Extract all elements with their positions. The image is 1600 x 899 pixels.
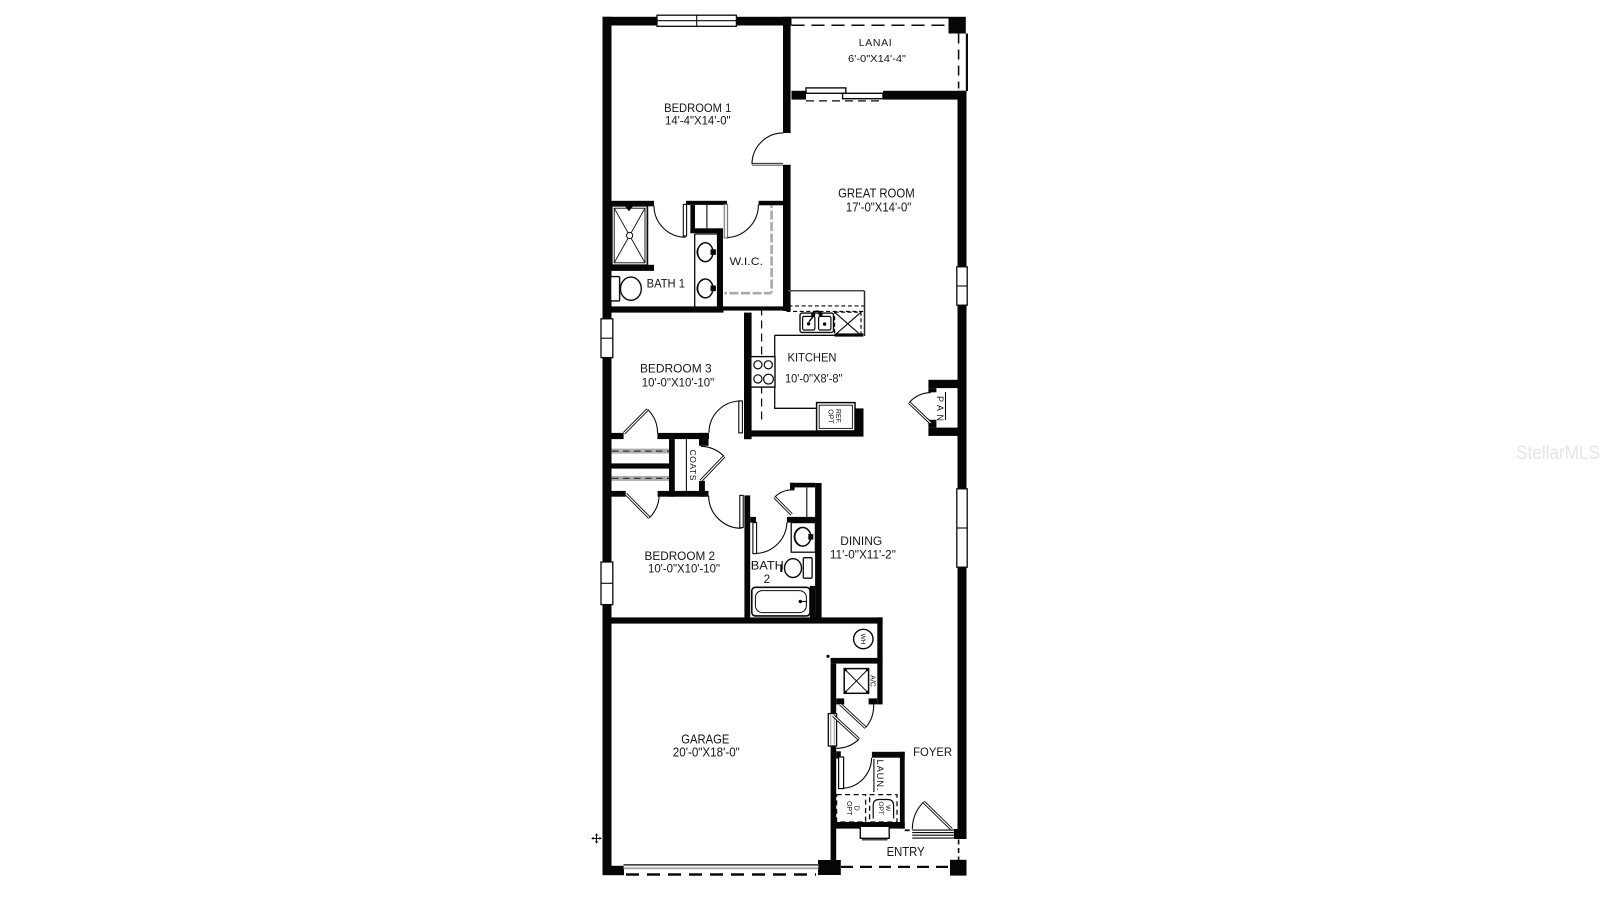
svg-text:A/C: A/C <box>868 675 875 687</box>
svg-text:REF.: REF. <box>834 409 841 424</box>
svg-text:2: 2 <box>764 573 771 586</box>
svg-text:LAUN.: LAUN. <box>875 760 886 791</box>
svg-text:DINING: DINING <box>840 534 882 548</box>
svg-text:StellarMLS: StellarMLS <box>1516 443 1600 464</box>
svg-text:FOYER: FOYER <box>913 745 952 759</box>
svg-text:LANAI: LANAI <box>859 37 892 49</box>
svg-text:BATH 1: BATH 1 <box>647 277 685 291</box>
svg-text:BEDROOM 3: BEDROOM 3 <box>640 362 712 376</box>
svg-text:D: D <box>853 806 860 811</box>
svg-text:11'-0"X11'-2": 11'-0"X11'-2" <box>830 548 896 562</box>
svg-text:OPT: OPT <box>877 802 884 815</box>
svg-text:GREAT ROOM: GREAT ROOM <box>838 186 915 201</box>
svg-text:W.I.C.: W.I.C. <box>730 256 763 268</box>
svg-text:10'-0"X8'-8": 10'-0"X8'-8" <box>785 373 843 386</box>
svg-text:OPT: OPT <box>845 801 852 816</box>
svg-text:COATS: COATS <box>688 450 698 481</box>
svg-text:17'-0"X14'-0": 17'-0"X14'-0" <box>846 200 911 214</box>
svg-text:OPT: OPT <box>827 409 834 424</box>
svg-text:10'-0"X10'-10": 10'-0"X10'-10" <box>648 561 720 575</box>
svg-text:14'-4"X14'-0": 14'-4"X14'-0" <box>665 113 731 127</box>
svg-text:BATH: BATH <box>751 560 784 573</box>
svg-text:PAN: PAN <box>935 396 945 421</box>
svg-text:KITCHEN: KITCHEN <box>788 352 837 365</box>
svg-text:20'-0"X18'-0": 20'-0"X18'-0" <box>673 745 740 760</box>
svg-text:ENTRY: ENTRY <box>887 844 925 859</box>
svg-text:W: W <box>884 805 891 812</box>
svg-text:WH: WH <box>859 634 866 645</box>
svg-text:6'-0"X14'-4": 6'-0"X14'-4" <box>848 54 906 65</box>
svg-text:10'-0"X10'-10": 10'-0"X10'-10" <box>642 376 715 390</box>
